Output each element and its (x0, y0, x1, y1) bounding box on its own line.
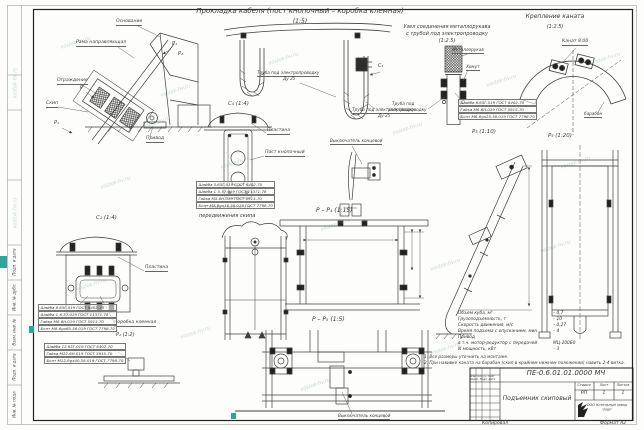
rope-scheme-view (222, 222, 288, 340)
review-mark (0, 256, 7, 268)
view-label-p5: Р₅ (1:20) (548, 134, 572, 140)
hardware-row: Болт М12-6gх40.58.019 ГОСТ 7798-70 (44, 357, 126, 364)
hardware-row: Болт М6-6gх25.58.019 ГОСТ 7798-70 (458, 113, 537, 120)
heading-hose-unit-scale: (1:2.5) (439, 39, 456, 44)
titleblock-sheets-value: 1 (622, 392, 625, 397)
callout-privod: Привод (146, 137, 164, 143)
p5-view (539, 145, 621, 340)
callout-kanat: Канат 8.00 (562, 40, 588, 46)
heading-hose-unit-2: с трубой под электропроводку (406, 32, 488, 37)
heading-rope-scheme-2: передвижения скипа (199, 214, 255, 219)
titleblock-title: Подъемник скиповый (503, 396, 572, 402)
side-strip-cell: Подп. и дата (12, 248, 17, 275)
spec-label: N мощность, кВт (458, 347, 496, 352)
hardware-row: Гайка М5-6Н.019 ГОСТ 5915-70 (196, 195, 275, 202)
callout-truba-2-dn: Ду 25 (378, 114, 390, 118)
hardware-row: Болт М8-6gх60.58.019 ГОСТ 7798-70 (38, 325, 117, 332)
view-marker-c1: С₁ (378, 64, 384, 69)
spec-label: Объем куба, м³ (458, 311, 492, 316)
spec-value: – 4 (553, 329, 559, 334)
side-strip-cell: Инв. № подл. (12, 390, 17, 418)
spec-value: – 0,7 (553, 311, 563, 316)
watermark: vostok-hv.ru (12, 68, 18, 99)
callout-plastina-top: Пластина (267, 129, 290, 135)
rope-fix-detail (520, 48, 626, 135)
watermark: vostok-hv.ru (12, 198, 18, 229)
callout-vykl-bottom: Выключатель концевой (338, 414, 390, 420)
callout-metallorukav: Металлорукав (452, 48, 484, 54)
hardware-row: Шайба 5.65Г.019 ГОСТ 6402-70 (196, 181, 275, 188)
callout-vykl-top: Выключатель концевой (330, 139, 382, 145)
titleblock-doc-number: ПЕ-0.6.01.01.0000 МЧ (527, 370, 606, 377)
view-label-pp5: Р – Р₅ (1:5) (312, 317, 345, 323)
hardware-row: Болт М5-6gх16.58.019 ГОСТ 7798-70 (196, 202, 275, 209)
view-label-p2: Р₂ (1:2) (116, 333, 135, 338)
view-label-p3: Р₃ (1:10) (472, 130, 496, 136)
view-label-c-left: С₁ (1:4) (96, 216, 117, 222)
view-marker-p4: Р₄ (54, 121, 59, 126)
callout-korobka: Коробка клемная (114, 321, 156, 327)
callout-ograzhdenie: Ограждение (57, 79, 88, 85)
titleblock-sheet-value: 1 (603, 392, 606, 397)
side-strip-cell: Подп. и дата (12, 353, 17, 380)
spec-label: в т.ч. мотор-редуктор с передачей (458, 341, 537, 346)
spec-value: – 3 (553, 347, 559, 352)
titleblock-sheets-label: Листов (617, 384, 630, 388)
hardware-row: Гайка М6-6Н.019 ГОСТ 5915-70 (458, 106, 537, 113)
callout-post-knop: Пост кнопочный (265, 151, 305, 157)
side-strip-cell: Инв. № дубл. (12, 283, 17, 310)
hardware-row: Гайка М8-6Н.019 ГОСТ 5915-70 (38, 318, 117, 325)
review-mark (231, 413, 236, 419)
view-marker-p1: Р₁ (172, 42, 177, 47)
spec-value: – 0,27 (553, 323, 566, 328)
review-mark (29, 326, 34, 333)
view-marker-p2: Р₂ (178, 52, 183, 57)
titleblock-sheet-label: Лист (600, 384, 609, 388)
heading-rope-fix: Крепление каната (526, 14, 585, 20)
heading-cable-routing-scale: (1:5) (293, 19, 307, 25)
hardware-list-c: Шайба 8.65Г.019 ГОСТ 6402-70 Шайба С 8.3… (38, 304, 117, 332)
hardware-list-a: Шайба 5.65Г.019 ГОСТ 6402-70 Шайба С 5.3… (196, 181, 275, 209)
spec-label: Время подъема с опусканием, мин (458, 329, 537, 334)
note-2: 2. При навивке каната на барабан (скип в… (424, 361, 625, 365)
limit-switch-view (348, 146, 380, 200)
titleblock-change-row: Изм. Кол.уч. Лист №док. Подп. Дата (471, 376, 500, 381)
hardware-row: Шайба С 8.37.019 ГОСТ 11371-78 (38, 311, 117, 318)
spec-value: – 10 (553, 317, 562, 322)
view-label-pp4: Р – Р₄ (1:15) (316, 208, 353, 214)
hardware-list-d: Шайба 12.65Г.019 ГОСТ 6402-70 Гайка М12-… (44, 343, 126, 364)
heading-cable-routing: Прокладка кабеля (пост кнопочный – короб… (196, 8, 403, 15)
hardware-list-b: Шайба 6.65Г.019 ГОСТ 6402-70 Гайка М6-6Н… (458, 99, 537, 120)
view-label-c4: С₄ (1:4) (228, 102, 249, 108)
drawing-sheet: { "watermark": { "text": "vostok-hv.ru" … (0, 0, 644, 430)
callout-homut: Хомут (466, 65, 480, 71)
callout-truba-1-dn: Ду 25 (283, 77, 295, 81)
spec-label: Грузоподъемность, т (458, 317, 506, 322)
spec-value: МЦ-200Б0 (553, 341, 575, 346)
callout-truba-3b: электропроводку (388, 108, 427, 114)
side-strip-cell: Взам. инв. № (12, 318, 17, 345)
hardware-row: Шайба 12.65Г.019 ГОСТ 6402-70 (44, 343, 126, 350)
spec-label: Скорость движения, м/с (458, 323, 513, 328)
format-label: Формат А2 (600, 422, 626, 427)
titleblock-stage-label: Стадия (577, 384, 590, 388)
hardware-row: Шайба 6.65Г.019 ГОСТ 6402-70 (458, 99, 537, 106)
callout-plastina-left: Пластина (145, 266, 168, 272)
callout-rama: Рама направляющая (76, 41, 126, 47)
callout-skip: Скип (46, 102, 58, 108)
copied-label: Копировал (482, 422, 508, 427)
pp5-view (235, 330, 445, 414)
heading-hose-unit-1: Узел соединения металлорукава (403, 25, 490, 30)
spec-label: Привод (458, 335, 475, 340)
titleblock-stage-value: РП (581, 392, 587, 397)
hardware-row: Шайба С 5.37.019 ГОСТ 11371-78 (196, 188, 275, 195)
callout-truba-3a: Труба под (392, 102, 414, 106)
hardware-row: Шайба 8.65Г.019 ГОСТ 6402-70 (38, 304, 117, 311)
callout-osnovanie: Основание (116, 20, 142, 26)
view-marker-p: Р (80, 86, 83, 91)
heading-rope-fix-scale: (1:2.5) (547, 25, 564, 30)
hardware-row: Гайка М12-6Н.019 ГОСТ 5915-70 (44, 350, 126, 357)
callout-baraban: барабан (584, 112, 602, 118)
pp4-view (280, 204, 428, 310)
titleblock-company-2: "РЭП" (602, 409, 612, 413)
note-1: 1. Все размеры уточнить на монтаже. (424, 355, 508, 359)
